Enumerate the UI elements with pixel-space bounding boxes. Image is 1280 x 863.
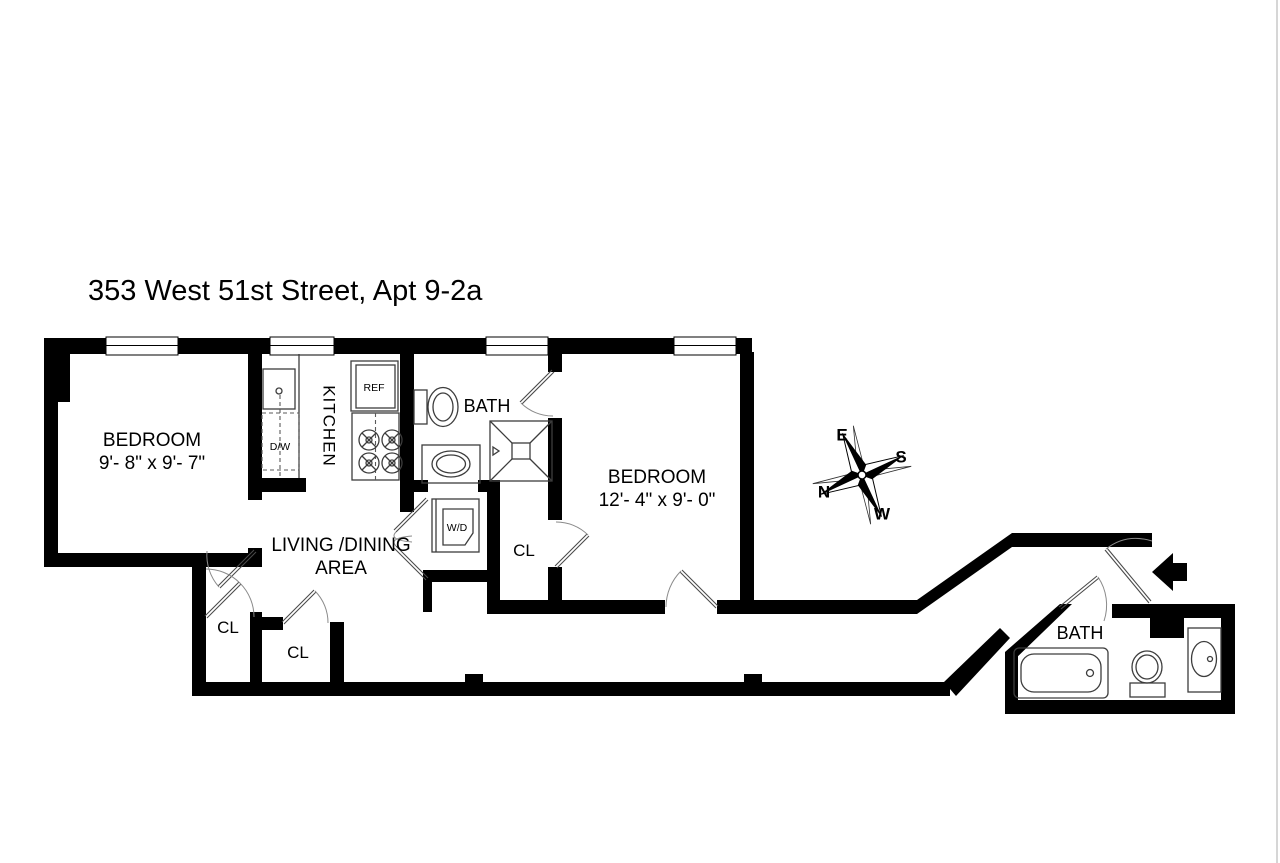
bedroom-left-label: BEDROOM <box>103 430 201 451</box>
dishwasher-label: D/W <box>270 441 291 453</box>
bedroom-left-dimensions: 9'- 8" x 9'- 7" <box>99 453 205 474</box>
window-bedroom-right <box>674 336 736 356</box>
window-bath-middle <box>486 336 548 356</box>
refrigerator-label: REF <box>364 382 385 394</box>
compass-south-label: S <box>895 447 906 466</box>
living-dining-label-line2: AREA <box>315 558 367 579</box>
compass-west-label: W <box>874 504 891 523</box>
window-kitchen <box>270 336 334 356</box>
plan-title: 353 West 51st Street, Apt 9-2a <box>88 275 483 307</box>
kitchen-label: KITCHEN <box>320 385 339 467</box>
closet-bedroom-label: CL <box>513 541 535 560</box>
compass-north-label: N <box>818 482 830 501</box>
window-bedroom-left <box>106 336 178 356</box>
bath-middle-label: BATH <box>464 396 511 416</box>
floor-plan: 353 West 51st Street, Apt 9-2a <box>0 0 1280 863</box>
closet-hall-2-label: CL <box>287 643 309 662</box>
washer-dryer-label: W/D <box>447 522 468 534</box>
floor-plan-svg: 353 West 51st Street, Apt 9-2a <box>0 0 1280 863</box>
bath-right-label: BATH <box>1057 623 1104 643</box>
bedroom-right-label: BEDROOM <box>608 467 706 488</box>
bedroom-right-dimensions: 12'- 4" x 9'- 0" <box>599 490 716 511</box>
closet-hall-1-label: CL <box>217 618 239 637</box>
living-dining-label-line1: LIVING /DINING <box>271 535 410 556</box>
compass-east-label: E <box>836 425 847 444</box>
